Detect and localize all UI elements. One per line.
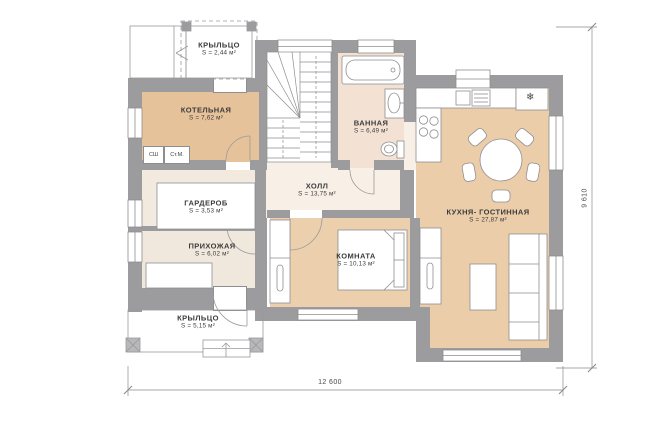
entry-closet [146, 263, 212, 288]
staircase [267, 52, 331, 162]
room-name: ГАРДЕРОБ [184, 199, 227, 208]
label-hall: ХОЛЛ S = 13,75 м² [298, 182, 336, 199]
dimension-bottom: 12 600 [318, 379, 342, 386]
closet-box-sh: СШ [143, 146, 164, 164]
window-top-2 [358, 40, 394, 53]
kitchen-counter [416, 88, 516, 108]
dimension-right: 9 610 [582, 188, 589, 208]
window-kitchen-top [456, 70, 490, 88]
tall-cabinet [420, 228, 441, 304]
door-bath [350, 170, 374, 194]
room-name: КОМНАТА [336, 252, 375, 261]
room-area: S = 7,62 м² [181, 115, 231, 123]
window-left-boiler [128, 108, 142, 138]
door-bedroom [290, 218, 322, 250]
window-right-1 [549, 116, 563, 170]
window-left-wardrobe [128, 200, 142, 227]
room-name: КРЫЛЬЦО [177, 314, 219, 323]
room-name: КУХНЯ- ГОСТИННАЯ [446, 208, 529, 217]
plan-linework [0, 0, 660, 440]
room-area: S = 13,75 м² [298, 191, 336, 199]
fridge-icon: ❄ [526, 93, 534, 103]
bathtub [342, 56, 404, 84]
window-bottom-bedroom [298, 309, 358, 320]
label-boiler: КОТЕЛЬНАЯ S = 7,62 м² [181, 106, 231, 123]
window-right-2 [549, 256, 563, 310]
label-entry: ПРИХОЖАЯ S = 6,02 м² [188, 242, 235, 259]
closet-label: Ст.М. [170, 152, 184, 158]
label-bedroom: КОМНАТА S = 10,13 м² [336, 252, 375, 269]
room-name: ХОЛЛ [298, 182, 336, 191]
closet-label: СШ [149, 152, 158, 158]
toilet [381, 141, 404, 158]
coffee-table [470, 264, 496, 310]
room-area: S = 10,13 м² [336, 261, 375, 269]
label-bath: ВАННАЯ S = 6,49 м² [354, 119, 389, 136]
window-top-1 [278, 40, 332, 53]
floor-plan: КРЫЛЬЦО S = 2,44 м² КОТЕЛЬНАЯ S = 7,62 м… [0, 0, 660, 440]
room-area: S = 6,49 м² [354, 128, 389, 136]
label-wardrobe: ГАРДЕРОБ S = 3,53 м² [184, 199, 227, 216]
bath-sink [385, 89, 404, 118]
room-name: КОТЕЛЬНАЯ [181, 106, 231, 115]
dining-table [462, 127, 541, 202]
room-name: ВАННАЯ [354, 119, 389, 128]
stove [416, 108, 441, 162]
room-area: S = 27,87 м² [446, 217, 529, 225]
door-boiler [226, 136, 250, 160]
window-left-entry [128, 232, 142, 262]
room-area: S = 2,44 м² [198, 50, 240, 58]
label-porch-top: КРЫЛЬЦО S = 2,44 м² [198, 41, 240, 58]
wardrobe-cabinet [270, 220, 290, 303]
closet-box-stm: Ст.М. [164, 146, 190, 164]
window-bottom-kitchen [443, 350, 521, 361]
room-name: ПРИХОЖАЯ [188, 242, 235, 251]
room-name: КРЫЛЬЦО [198, 41, 240, 50]
room-area: S = 6,02 м² [188, 251, 235, 259]
room-area: S = 3,53 м² [184, 208, 227, 216]
room-area: S = 5,15 м² [177, 323, 219, 331]
sofa [509, 234, 547, 340]
label-kitchen-living: КУХНЯ- ГОСТИННАЯ S = 27,87 м² [446, 208, 529, 225]
label-porch-bottom: КРЫЛЬЦО S = 5,15 м² [177, 314, 219, 331]
